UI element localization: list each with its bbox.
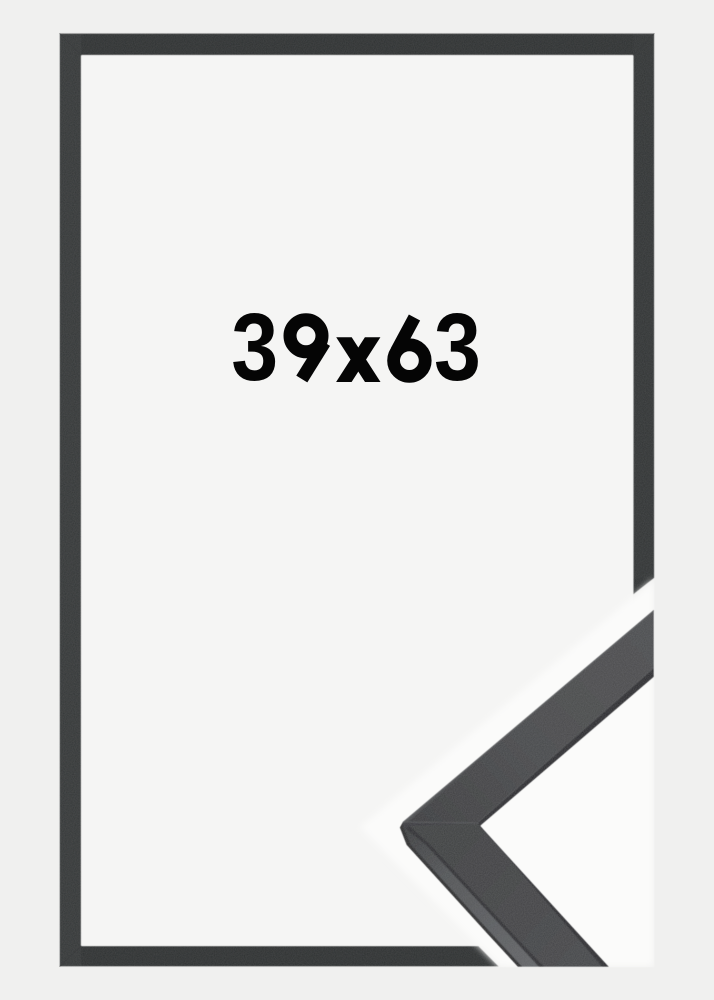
svg-text:3: 3 xyxy=(434,294,481,401)
svg-text:3: 3 xyxy=(231,294,278,401)
